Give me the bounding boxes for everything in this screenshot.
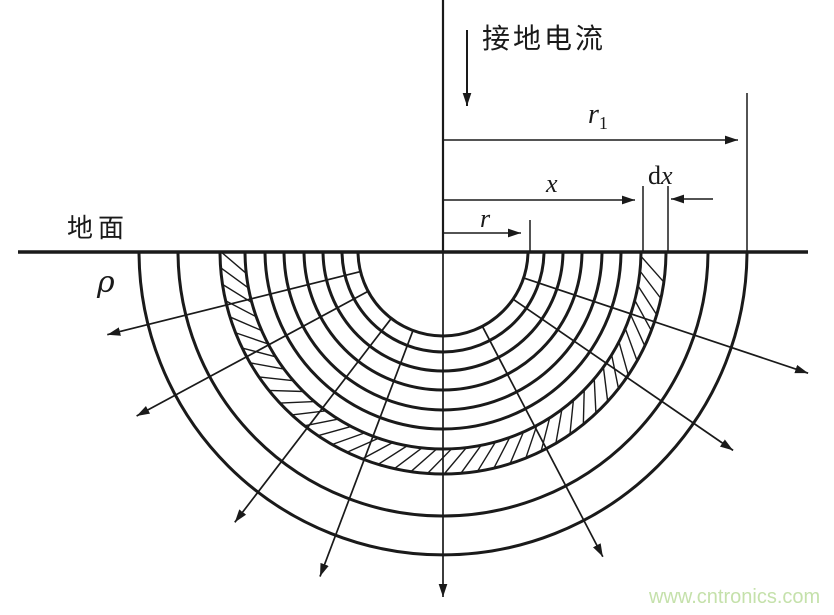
ground-surface-label: 地面 [67,216,129,242]
dx-d: d [648,161,661,190]
hatch-line [318,426,351,435]
dx-dimension-label: dx [648,163,673,189]
r1-base: r [588,99,599,130]
watermark: www.cntronics.com [649,587,820,607]
r1-dimension-label: r1 [588,101,608,132]
hatch-line [259,377,293,381]
x-dimension-label: x [546,171,558,197]
diagram-canvas: 接地电流 r1 x dx r 地面 ρ www.cntronics.com [0,0,834,615]
current-flow-arrow [513,299,733,450]
hatch-line [347,438,379,452]
hatch-line [619,342,628,375]
r-dimension-label: r [480,206,490,232]
hatch-line [603,367,607,401]
hatch-line [280,402,315,404]
hatch-line [641,256,664,282]
hatch-line [631,314,645,345]
grounding-current-label: 接地电流 [482,26,606,54]
hatch-line [332,433,365,445]
grounding-current-equipotential-diagram [0,0,834,615]
r1-subscript: 1 [599,113,608,133]
hatch-line [570,400,573,434]
resistivity-label: ρ [97,268,115,298]
current-flow-arrow [235,318,391,522]
hatch-line [583,390,584,425]
dx-x: x [661,161,673,190]
hatch-line [269,390,304,391]
current-flow-arrow [524,278,808,373]
hatch-line [625,328,637,360]
current-flow-arrow [137,291,369,416]
hatch-line [594,379,596,413]
